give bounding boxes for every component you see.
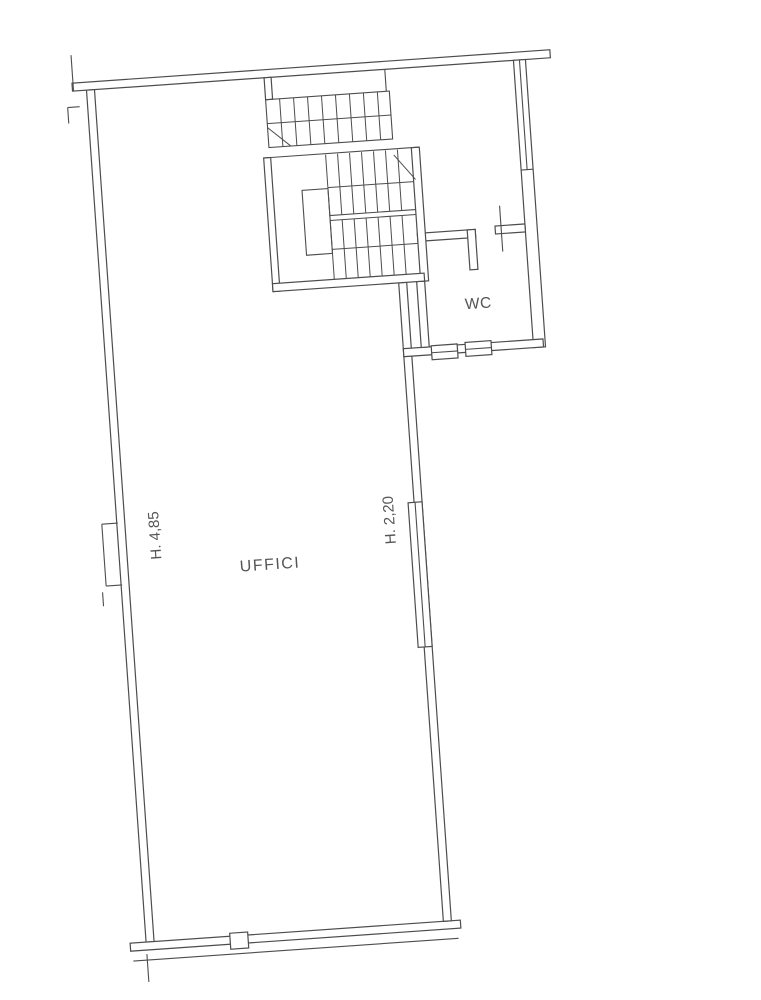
bottom-wall-pillar: [230, 932, 249, 949]
upper-stair-flight: [264, 69, 393, 147]
stair-landing-edge: [330, 210, 416, 216]
left-wall-recess: [102, 523, 118, 524]
bottom-wall: [130, 920, 461, 961]
stairwell-top-edge: [264, 147, 420, 158]
bottom-left-tick: [147, 954, 149, 982]
room-label-uffici: UFFICI: [239, 554, 301, 575]
top-wall: [72, 50, 550, 91]
exterior-right-wall: [513, 59, 545, 347]
staircase: [258, 67, 429, 291]
room-label-wc: WC: [464, 294, 492, 313]
top-left-stub: [68, 107, 80, 108]
height-annotation-right: H. 2,20: [380, 495, 400, 544]
floor-plan: UFFICI WC H. 4,85 H. 2,20: [0, 0, 668, 998]
floor-plan-canvas: UFFICI WC H. 4,85 H. 2,20: [0, 0, 761, 1000]
height-annotation-left: H. 4,85: [145, 511, 165, 560]
wc-left-wall: [417, 281, 430, 347]
stair-well: [302, 189, 332, 256]
wc-top-wall-right: [495, 224, 525, 234]
right-wall-window: [408, 502, 432, 648]
left-wall: [87, 90, 155, 942]
wc-partition-stub: [467, 229, 478, 269]
stairwell-left-wall: [264, 158, 280, 292]
stair-runs: [300, 149, 422, 282]
floor-plan-drawing: UFFICI WC H. 4,85 H. 2,20: [0, 0, 668, 998]
stair-break-line: [268, 126, 291, 147]
